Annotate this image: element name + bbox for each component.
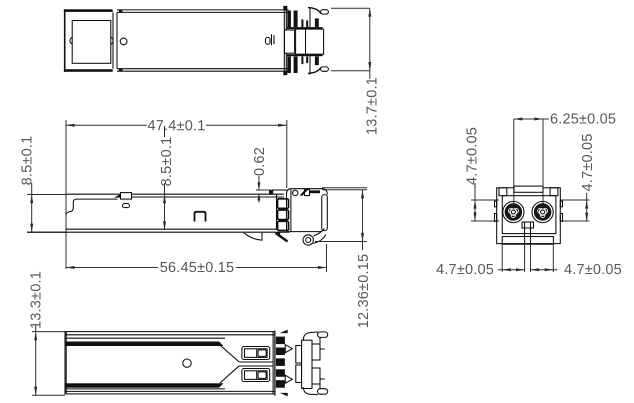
svg-text:4.7±0.05: 4.7±0.05: [465, 127, 481, 185]
svg-text:8.5±0.1: 8.5±0.1: [159, 137, 175, 187]
svg-text:13.3±0.1: 13.3±0.1: [29, 271, 45, 329]
svg-text:56.45±0.15: 56.45±0.15: [160, 260, 234, 276]
svg-text:47.4±0.1: 47.4±0.1: [148, 118, 206, 134]
svg-text:6.25±0.05: 6.25±0.05: [550, 112, 616, 128]
svg-text:0.62: 0.62: [252, 147, 268, 176]
svg-text:4.7±0.05: 4.7±0.05: [564, 262, 622, 278]
svg-text:4.7±0.05: 4.7±0.05: [436, 262, 494, 278]
svg-text:13.7±0.1: 13.7±0.1: [365, 77, 381, 135]
svg-text:8.5±0.1: 8.5±0.1: [20, 136, 36, 186]
svg-text:4.7±0.05: 4.7±0.05: [580, 134, 596, 192]
svg-text:12.36±0.15: 12.36±0.15: [356, 254, 372, 328]
